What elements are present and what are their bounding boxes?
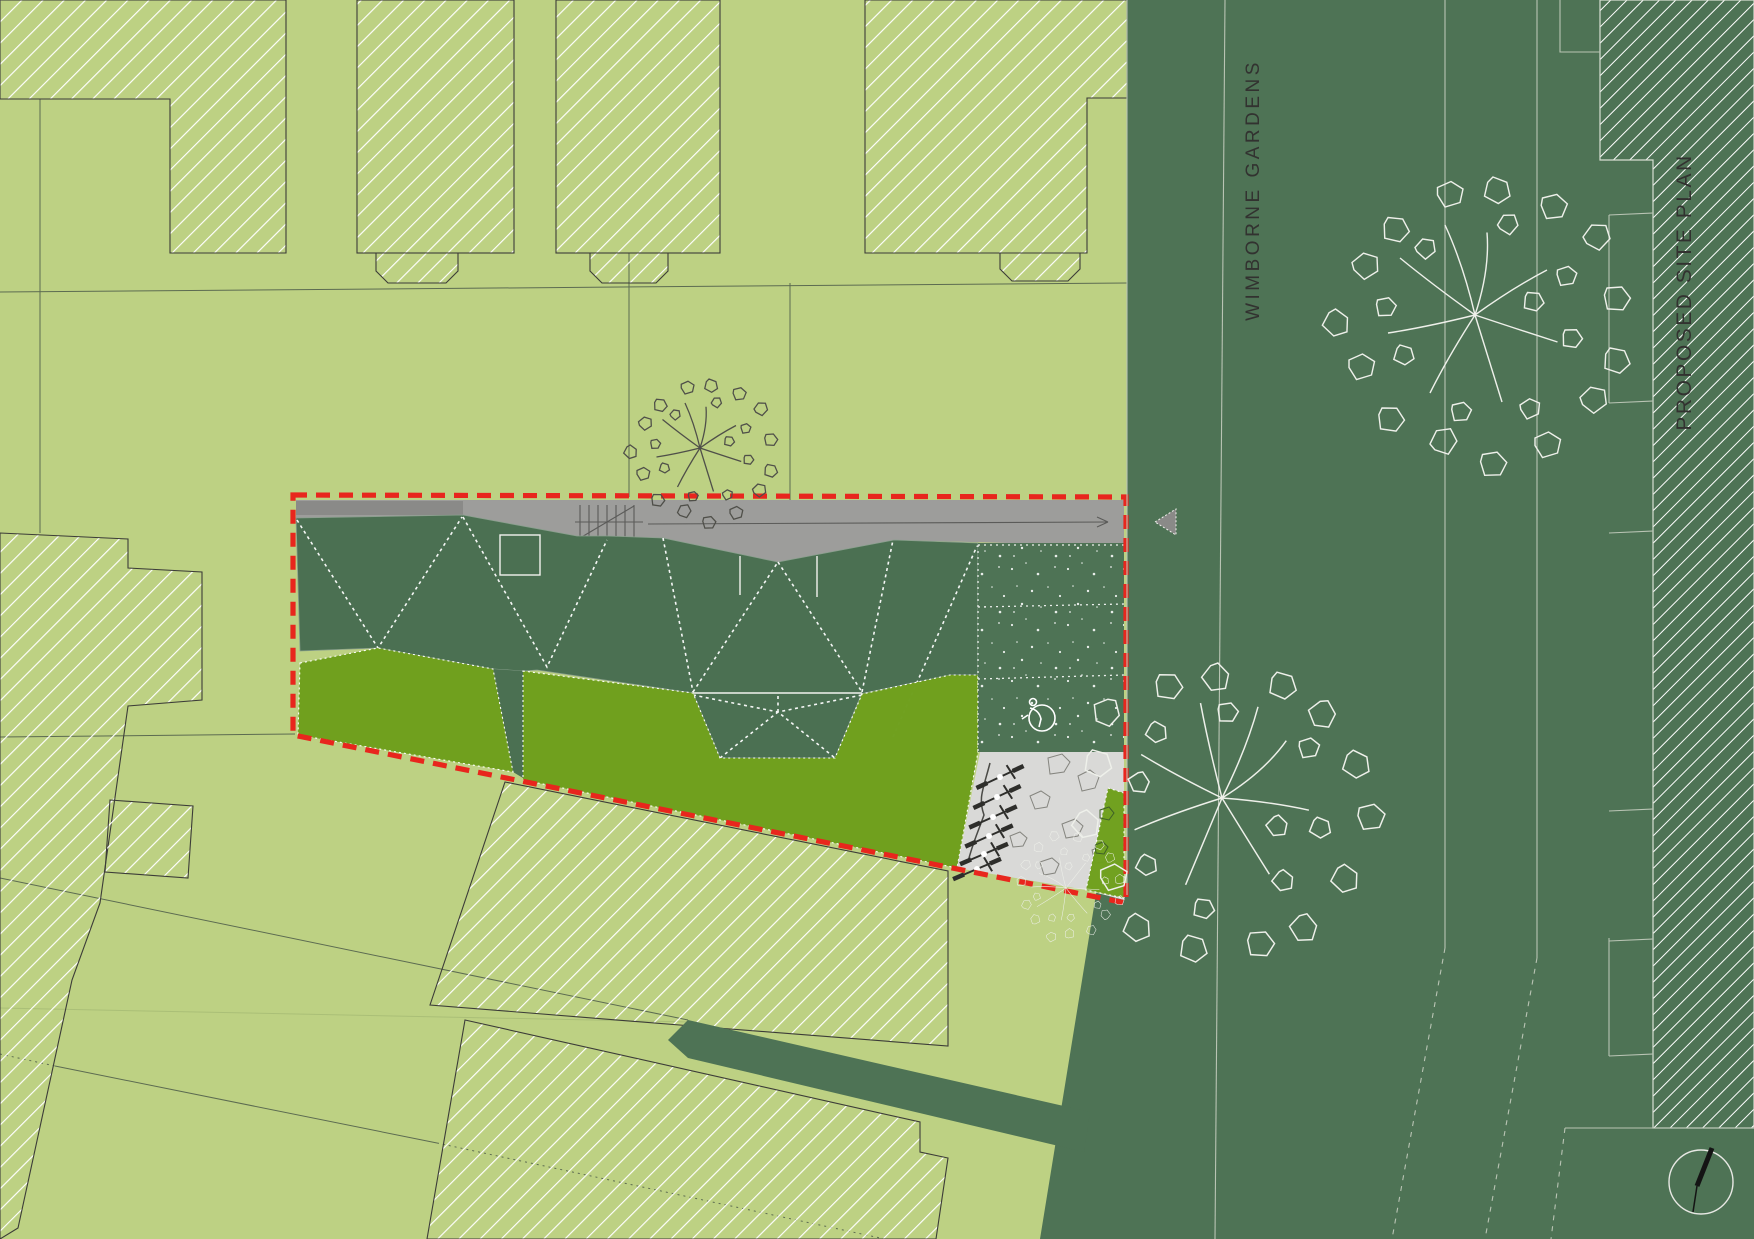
- parking-court: [978, 543, 1124, 752]
- proposed-site-plan: WIMBORNE GARDENS PROPOSED SITE PLAN: [0, 0, 1754, 1239]
- drawing-title: PROPOSED SITE PLAN: [1673, 153, 1696, 430]
- street-carriageway: [1040, 0, 1754, 1239]
- street-label: WIMBORNE GARDENS: [1243, 59, 1264, 321]
- deck-edge-band: [296, 501, 463, 515]
- site-plan-canvas: WIMBORNE GARDENS PROPOSED SITE PLAN: [0, 0, 1754, 1239]
